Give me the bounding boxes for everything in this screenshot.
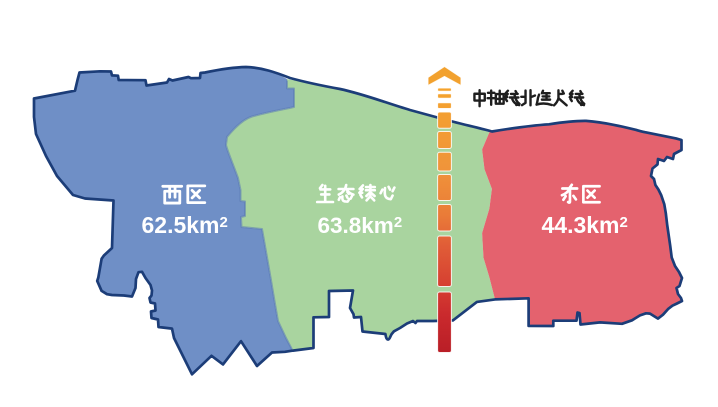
svg-text:63.8km2: 63.8km2	[318, 213, 403, 238]
svg-text:62.5km2: 62.5km2	[142, 212, 228, 238]
svg-text:44.3km2: 44.3km2	[542, 212, 628, 238]
